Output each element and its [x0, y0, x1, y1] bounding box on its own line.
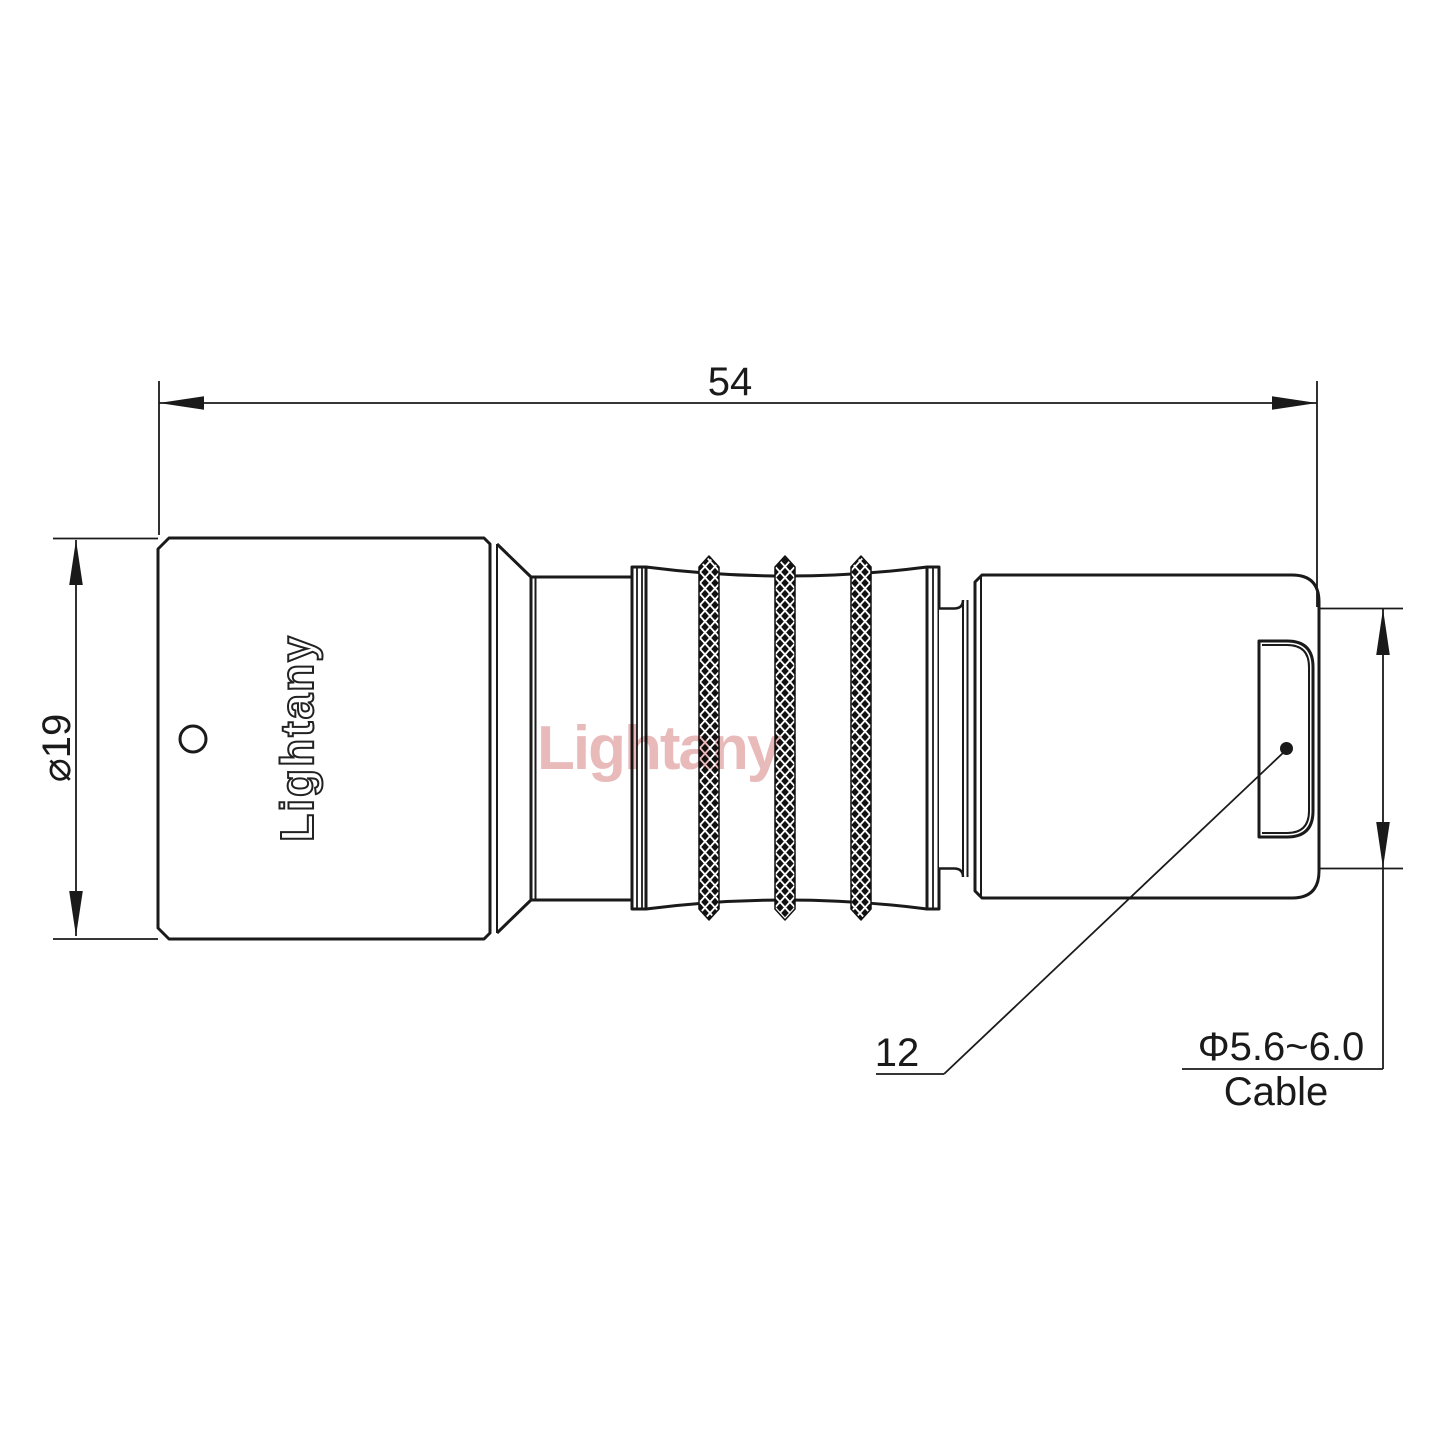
- dim-label-rear-diameter: 12: [875, 1031, 920, 1075]
- technical-drawing-page: 54 ⌀19 12 Φ5.6~6.0 Cable Lightany Lighta…: [0, 0, 1440, 1440]
- neck-groove-fill: [939, 609, 975, 869]
- front-body: [158, 538, 490, 939]
- dim54-arrow-left: [159, 396, 204, 410]
- cable-boot: [1259, 641, 1313, 837]
- dim-label-cable-diameter: Φ5.6~6.0: [1198, 1025, 1364, 1069]
- connector-technical-drawing: 54 ⌀19 12 Φ5.6~6.0 Cable Lightany Lighta…: [0, 0, 1440, 1440]
- dim-label-overall-length: 54: [708, 360, 753, 404]
- knurl-band-3: [851, 556, 871, 920]
- dim-label-body-diameter: ⌀19: [35, 714, 79, 783]
- dim19-arrow-bottom: [69, 891, 83, 936]
- brand-engraving-text: Lightany: [271, 634, 323, 842]
- dim19-arrow-top: [69, 540, 83, 585]
- taper-cone: [497, 544, 531, 933]
- dim54-arrow-right: [1272, 396, 1317, 410]
- dim-cable-arrow-bottom: [1376, 822, 1390, 868]
- brand-watermark-text: Lightany: [537, 714, 782, 783]
- side-hole: [180, 726, 206, 752]
- dim-label-cable: Cable: [1224, 1070, 1329, 1114]
- dim-cable-arrow-top: [1376, 609, 1390, 655]
